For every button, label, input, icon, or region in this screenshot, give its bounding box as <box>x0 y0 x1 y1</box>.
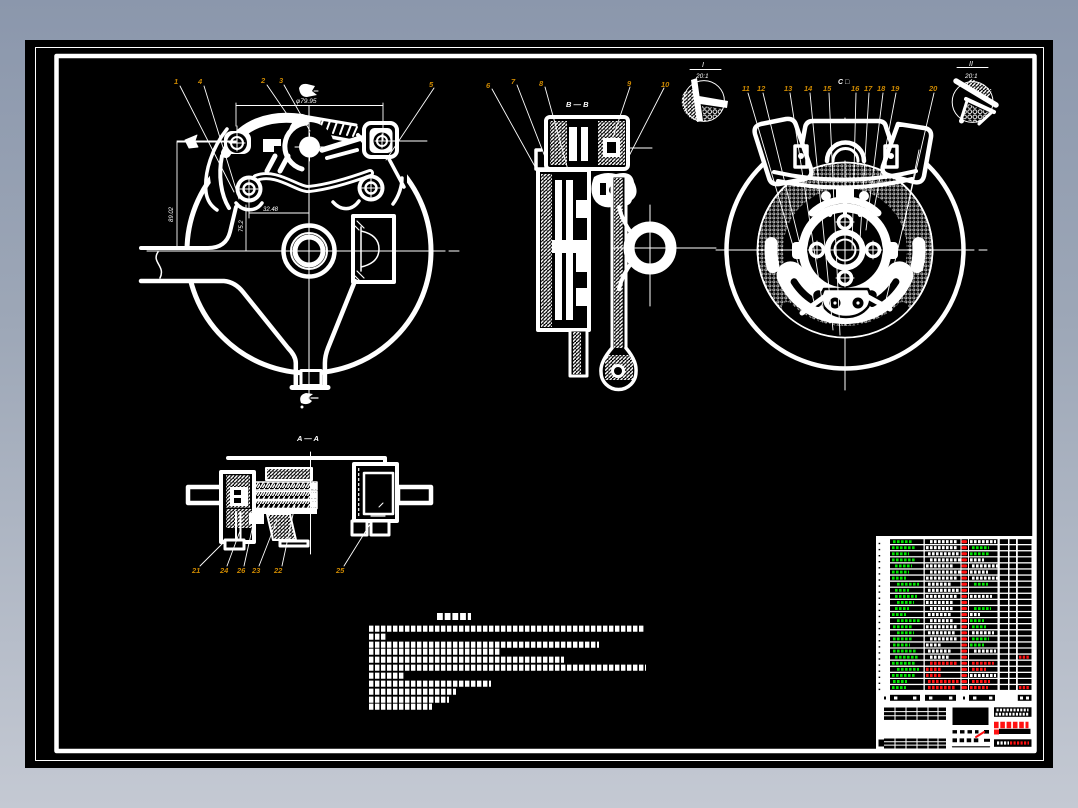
svg-text:22: 22 <box>273 566 283 575</box>
svg-text:15: 15 <box>823 84 832 93</box>
svg-text:14: 14 <box>804 84 813 93</box>
svg-text:I: I <box>702 62 704 69</box>
svg-text:7: 7 <box>511 77 516 86</box>
svg-text:II: II <box>969 61 973 68</box>
svg-text:24: 24 <box>219 566 229 575</box>
svg-text:φ79.95: φ79.95 <box>296 98 317 105</box>
svg-text:3: 3 <box>279 76 284 85</box>
svg-text:10: 10 <box>661 80 670 89</box>
svg-text:75.2: 75.2 <box>239 220 245 232</box>
svg-text:17: 17 <box>864 84 873 93</box>
svg-text:19: 19 <box>891 84 900 93</box>
svg-text:9: 9 <box>627 79 632 88</box>
svg-text:26: 26 <box>236 566 246 575</box>
svg-text:20: 20 <box>928 84 938 93</box>
svg-text:21: 21 <box>191 566 200 575</box>
svg-text:1: 1 <box>174 77 178 86</box>
svg-text:5: 5 <box>429 80 434 89</box>
svg-text:8: 8 <box>539 79 544 88</box>
svg-text:89.02: 89.02 <box>169 206 175 222</box>
svg-text:C □: C □ <box>838 79 850 86</box>
svg-text:11: 11 <box>742 84 750 93</box>
svg-text:4: 4 <box>197 77 203 86</box>
svg-text:32.48: 32.48 <box>263 207 279 213</box>
svg-text:12: 12 <box>757 84 766 93</box>
svg-text:6: 6 <box>486 81 491 90</box>
svg-text:16: 16 <box>851 84 860 93</box>
svg-text:B — B: B — B <box>566 100 589 109</box>
svg-text:18: 18 <box>877 84 886 93</box>
svg-text:A — A: A — A <box>296 434 319 443</box>
svg-text:23: 23 <box>251 566 261 575</box>
svg-text:20:1: 20:1 <box>964 73 978 80</box>
svg-text:13: 13 <box>784 84 793 93</box>
svg-text:2: 2 <box>260 76 266 85</box>
svg-text:25: 25 <box>335 566 345 575</box>
